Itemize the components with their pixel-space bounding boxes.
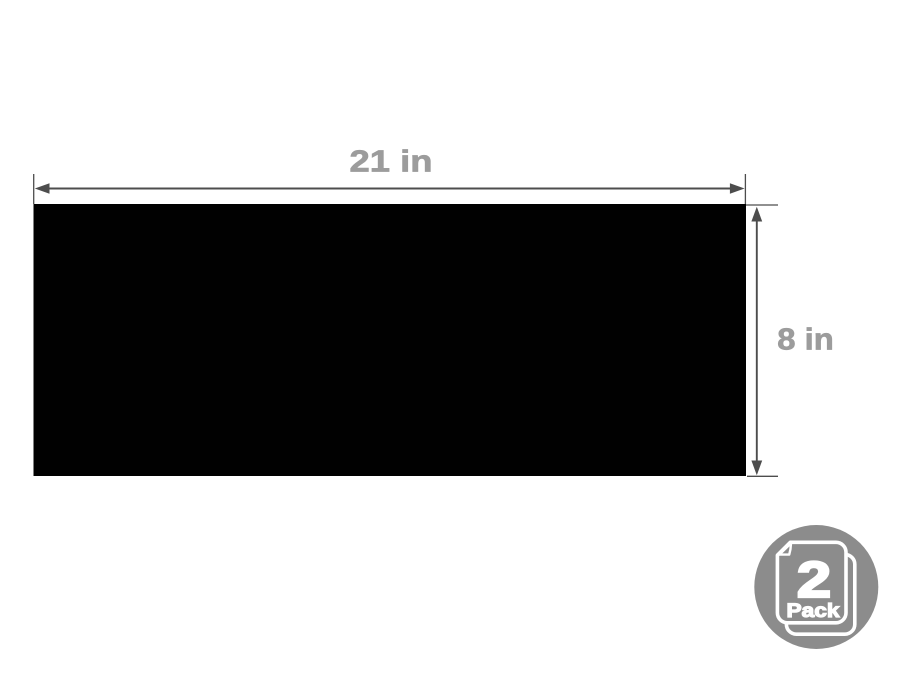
svg-text:Pack: Pack: [787, 600, 840, 622]
svg-text:21 in: 21 in: [350, 146, 433, 179]
svg-text:8 in: 8 in: [777, 324, 834, 357]
